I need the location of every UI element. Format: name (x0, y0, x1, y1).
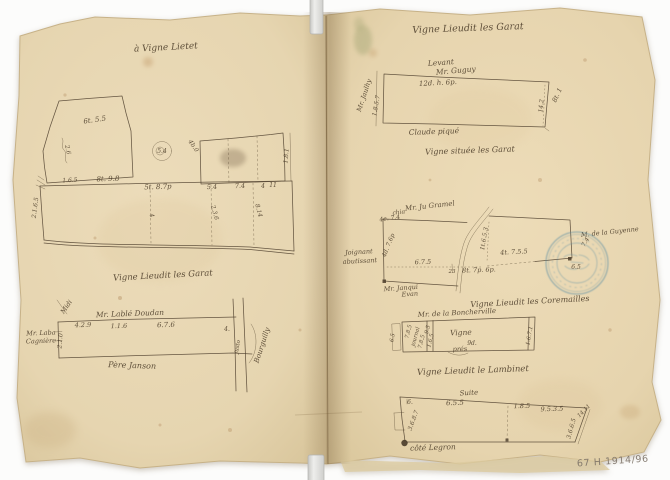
corner-marker (506, 439, 509, 442)
handwritten-label: Vigne (450, 328, 473, 338)
handwritten-label: Evan (400, 289, 418, 298)
handwritten-label: 6. (407, 399, 413, 406)
handwritten-label: 11 (269, 182, 277, 189)
handwritten-label: 5t. 8.7p (144, 183, 172, 192)
manuscript-scan: à Vigne Lietet 6t. 5.52.61.6.58t. 9.85t.… (0, 0, 670, 480)
corner-marker (568, 257, 572, 261)
ink-smudge (220, 149, 246, 167)
handwritten-label: 1.8.1 (282, 148, 290, 164)
handwritten-label: 23 (448, 269, 456, 275)
handwritten-label: 5.4 (157, 148, 167, 155)
ink-blot (401, 440, 407, 446)
handwritten-label: 7.4 (235, 182, 246, 190)
handwritten-label: 4t. 7.5.5 (499, 247, 528, 256)
scanned-document-canvas: à Vigne Lietet 6t. 5.52.61.6.58t. 9.85t.… (0, 0, 670, 480)
handwritten-label: 8t. 9.8 (96, 175, 120, 184)
handwritten-label: 1.1.6 (111, 322, 128, 331)
handwritten-label: 1.8.5 (514, 402, 531, 411)
handwritten-label: 9.5.3.5 (540, 405, 563, 414)
handwritten-label: 6.7.5 (415, 258, 432, 267)
handwritten-label: 8t. 7p. 6p. (462, 265, 496, 274)
handwritten-label: 6.5.5 (446, 399, 465, 408)
handwritten-label: Claude piqué (409, 126, 460, 137)
handwritten-label: Père Janson (107, 360, 156, 371)
handwritten-label: 2.1.0 (56, 333, 64, 350)
handwritten-label: Suite (459, 389, 478, 398)
corner-marker (383, 280, 387, 284)
handwritten-label: Joignant (343, 247, 373, 257)
handwritten-label: 9d. (467, 340, 477, 347)
handwritten-label: 1.6.5 (62, 177, 78, 185)
handwritten-label: 4 (260, 183, 265, 190)
handwritten-label: 4. (223, 326, 230, 333)
handwritten-label: Cagnière (26, 336, 56, 345)
top-binding-clip (310, 0, 323, 34)
handwritten-label: 6.7.6 (157, 321, 176, 330)
bottom-binding-clip (308, 455, 324, 480)
handwritten-label: 5.4 (207, 183, 218, 191)
handwritten-label: prés (453, 345, 468, 354)
handwritten-label: côté Legron (410, 442, 456, 453)
handwritten-label: 4.2.9 (74, 321, 92, 330)
handwritten-label: 14.2 (537, 99, 545, 113)
